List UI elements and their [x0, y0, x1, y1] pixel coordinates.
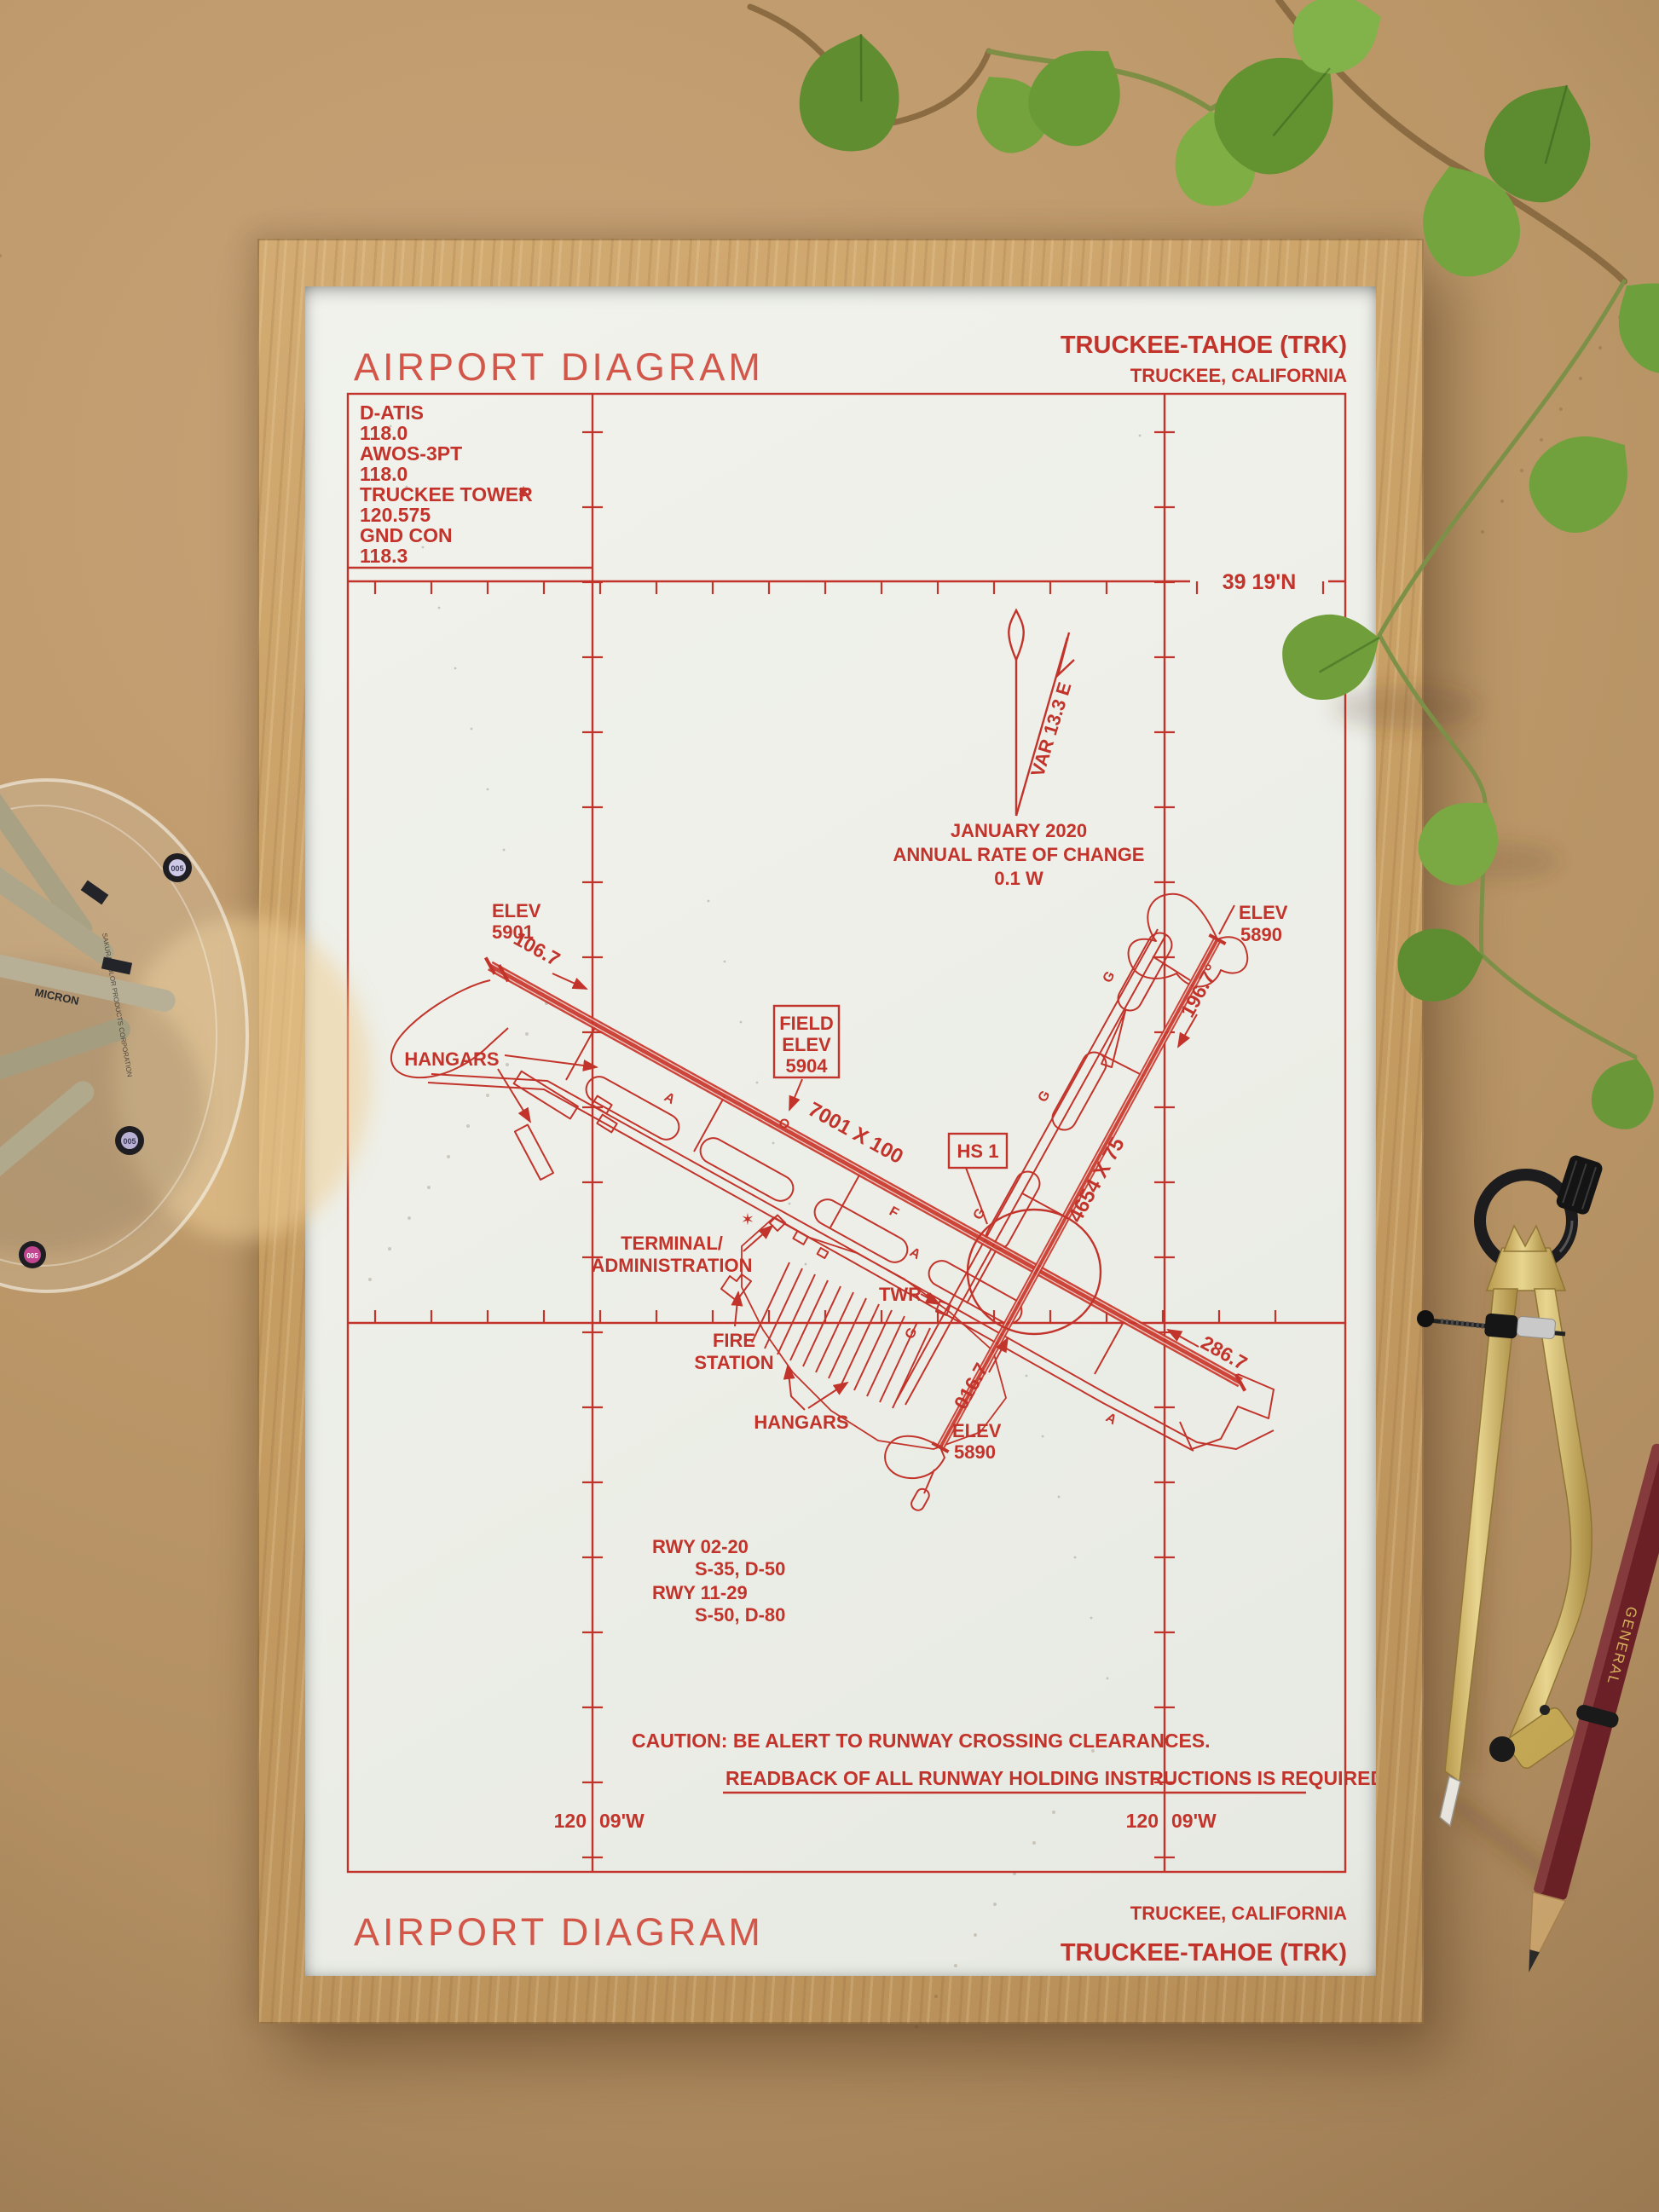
rwy-11-29-dim: 7001 X 100	[804, 1098, 906, 1169]
paper-speck	[837, 1384, 840, 1387]
paper-speck	[772, 1142, 775, 1145]
hangar-row-line	[867, 1316, 905, 1396]
compass-adjust-screw	[1417, 1310, 1565, 1339]
rwy-02-20-dim: 4654 X 75	[1064, 1134, 1130, 1227]
taxiway-a-label: A	[662, 1090, 678, 1108]
hangar-row-line	[841, 1304, 879, 1384]
pencil-body	[1533, 1442, 1659, 1901]
elev-11: 5901	[492, 921, 534, 943]
hangar-row-line	[790, 1280, 828, 1360]
leaf	[792, 26, 910, 159]
lon-label-left: 120	[554, 1810, 587, 1832]
compass-right-leg	[1509, 1289, 1592, 1751]
paper-speck	[1139, 435, 1142, 437]
screw-knurled-nut	[1484, 1313, 1518, 1338]
terminal-label: ADMINISTRATION	[591, 1255, 752, 1276]
taxiway-a-label: A	[907, 1245, 923, 1263]
rwy-data-line: RWY 02-20	[652, 1536, 749, 1557]
elev-11: ELEV	[492, 900, 541, 921]
pencil-highlight	[1533, 1442, 1659, 1895]
hangar-row-line	[777, 1274, 815, 1354]
hangars-s-label: HANGARS	[754, 1412, 848, 1433]
pen-size-text: 005	[123, 1137, 136, 1146]
leaf	[959, 60, 1060, 165]
paper-speck	[487, 788, 489, 791]
caution-line-1: CAUTION: BE ALERT TO RUNWAY CROSSING CLE…	[632, 1730, 1211, 1752]
airport-diagram-paper: AIRPORT DIAGRAM TRUCKEE-TAHOE (TRK) TRUC…	[305, 286, 1376, 1976]
rwy-data-line: RWY 11-29	[652, 1582, 748, 1603]
paper-speck	[805, 1263, 807, 1266]
compass-lead-tip	[1440, 1776, 1460, 1826]
pen-cap	[115, 1126, 144, 1155]
runways	[486, 935, 1246, 1452]
compass-head	[1487, 1248, 1565, 1291]
paper-speck	[1090, 1617, 1093, 1620]
tool-shadow	[1466, 1262, 1500, 1773]
runway-thresholds	[486, 935, 1246, 1452]
field-elev-line: 5904	[786, 1055, 829, 1077]
taxiway-g-label: G	[1101, 969, 1119, 985]
pen	[0, 933, 177, 1014]
caution-line-2: READBACK OF ALL RUNWAY HOLDING INSTRUCTI…	[725, 1767, 1376, 1789]
latitude-label: 39 19'N	[1223, 570, 1297, 594]
runway-11-29	[490, 966, 1240, 1383]
pen-cap-dot	[121, 1132, 138, 1149]
field-elev-line: FIELD	[779, 1013, 834, 1034]
clamp-screw-knob	[1489, 1736, 1515, 1762]
paper-speck	[1058, 1496, 1061, 1499]
elev-20: ELEV	[1239, 902, 1288, 923]
taxiway-g-label: G	[1036, 1089, 1054, 1105]
desk-speck	[915, 2025, 918, 2029]
hangar-row-line	[752, 1262, 789, 1343]
beacon-star-icon: ✶	[741, 1211, 754, 1229]
lon-label-right: 09'W	[599, 1810, 645, 1832]
clamp-bolt	[1540, 1705, 1550, 1715]
field-elev-line: ELEV	[782, 1034, 831, 1055]
paper-speck	[438, 607, 441, 609]
pen-cap-pink: 005	[19, 1241, 46, 1268]
compass-ring-highlight	[1480, 1175, 1572, 1267]
tower-star-icon: ✶	[517, 484, 529, 500]
hangars-nw-label: HANGARS	[404, 1048, 499, 1070]
pen	[0, 1015, 133, 1126]
rwy-02-heading: 016.7	[950, 1360, 993, 1413]
freq-line: TRUCKEE TOWER	[360, 483, 533, 505]
hotspot-label: HS 1	[957, 1141, 999, 1162]
desk-speck	[1598, 346, 1602, 349]
airport-diagram-chart: AIRPORT DIAGRAM TRUCKEE-TAHOE (TRK) TRUC…	[305, 286, 1376, 1976]
variation-value: 0.1 W	[994, 868, 1043, 889]
pen-cap-005: 005	[115, 1126, 144, 1155]
leaf	[1405, 150, 1534, 289]
pencil-brand-text: GENERAL	[1604, 1605, 1640, 1688]
twr-label: TWR	[879, 1284, 922, 1305]
pen-fine-print: SAKURA COLOR PRODUCTS CORPORATION	[101, 933, 134, 1078]
field-elev-text: FIELD ELEV 5904	[779, 1013, 834, 1077]
compass-left-leg	[1445, 1289, 1517, 1782]
elev-02: 5890	[954, 1441, 996, 1463]
pen-size-text: 005	[26, 1252, 38, 1260]
fire-label: FIRE	[713, 1330, 755, 1351]
glass-cup	[0, 780, 247, 1291]
pencil-wood-tip	[1517, 1892, 1566, 1959]
screw-silver-sleeve	[1517, 1316, 1556, 1339]
freq-line: 118.3	[360, 545, 408, 567]
tool-shadow	[1449, 1799, 1560, 1884]
paper-speck	[708, 900, 710, 903]
rwy-20-heading: 196.7°	[1176, 961, 1223, 1021]
desk-speck	[1481, 530, 1484, 534]
freq-line: AWOS-3PT	[360, 442, 462, 465]
paper-speck	[454, 667, 457, 670]
desk-speck	[1579, 377, 1582, 380]
compass-fork	[1504, 1226, 1546, 1251]
paper-speck	[789, 1203, 791, 1205]
leaf	[1469, 64, 1614, 218]
brass-compass	[1417, 1153, 1604, 1826]
taxiway-g-label: G	[903, 1325, 921, 1342]
field-elev-leader	[789, 1079, 802, 1110]
runway-labels: 7001 X 100 4654 X 75 106.7 286.7 196.7° …	[510, 927, 1251, 1413]
micron-pens: MICRON SAKURA COLOR PRODUCTS CORPORATION…	[0, 736, 192, 1268]
longitude-labels: 120 09'W 120 09'W	[554, 1810, 1217, 1832]
oak-picture-frame: AIRPORT DIAGRAM TRUCKEE-TAHOE (TRK) TRUC…	[257, 239, 1424, 2024]
caution-note: CAUTION: BE ALERT TO RUNWAY CROSSING CLE…	[632, 1730, 1376, 1789]
frequency-box: D-ATIS 118.0 AWOS-3PT 118.0 TRUCKEE TOWE…	[360, 401, 533, 567]
freq-line: D-ATIS	[360, 401, 424, 424]
facility-labels: HANGARS TERMINAL/ ADMINISTRATION FIRE ST…	[404, 1048, 922, 1433]
apron-and-buildings	[514, 1071, 1006, 1449]
rwy-data-line: S-35, D-50	[695, 1558, 785, 1580]
glass-shadow	[0, 963, 205, 1253]
desk-speck	[1500, 500, 1504, 503]
variation-rate: ANNUAL RATE OF CHANGE	[893, 844, 1145, 865]
magnetic-variation-label: VAR 13.3 E	[1026, 679, 1075, 779]
paper-speck	[740, 1021, 743, 1024]
variation-date: JANUARY 2020	[951, 820, 1087, 841]
general-pencil: GENERAL	[1508, 1441, 1659, 1978]
paper-speck	[503, 849, 506, 852]
freq-line: GND CON	[360, 524, 453, 546]
pencil-grip-band	[1575, 1703, 1620, 1729]
freq-line: 118.0	[360, 463, 408, 485]
pen	[0, 794, 118, 968]
hangar-row-line	[816, 1292, 853, 1372]
desk-speck	[1520, 469, 1523, 472]
desk-speck	[1638, 285, 1641, 288]
paper-speckles	[390, 425, 1142, 1741]
paper-speck	[1026, 1375, 1028, 1377]
pen-band	[101, 957, 132, 975]
airport-name: TRUCKEE-TAHOE (TRK)	[1061, 332, 1347, 359]
leaf	[1583, 1048, 1659, 1138]
pen-brand-text: MICRON	[33, 985, 80, 1008]
leaf	[1594, 258, 1659, 389]
compass-top-knob	[1555, 1153, 1604, 1216]
variation-note: JANUARY 2020 ANNUAL RATE OF CHANGE 0.1 W	[893, 820, 1145, 889]
freq-line: 118.0	[360, 422, 408, 444]
pen-cap-005: 005	[163, 853, 192, 882]
elev-02: ELEV	[952, 1420, 1002, 1441]
leaf-shadow	[1441, 842, 1560, 880]
graticule-ticks	[375, 432, 1323, 1857]
desk-speck	[1540, 438, 1543, 442]
chart-title: AIRPORT DIAGRAM	[354, 345, 764, 389]
pen-cap	[163, 853, 192, 882]
leaf	[1171, 107, 1258, 210]
leaf	[1283, 0, 1395, 84]
drafting-tools: GENERAL	[1417, 1153, 1659, 1978]
elev-20: 5890	[1240, 924, 1282, 945]
paper-speck	[1042, 1435, 1044, 1438]
paper-speck	[1107, 1678, 1109, 1680]
airport-city: TRUCKEE, CALIFORNIA	[1130, 365, 1347, 386]
footer-title: AIRPORT DIAGRAM	[354, 1910, 764, 1954]
terminal-label: TERMINAL/	[621, 1233, 723, 1254]
pen	[0, 736, 96, 943]
pen-band	[81, 881, 109, 905]
taxiway-a-label: A	[1103, 1411, 1119, 1429]
pen-cap-dot	[169, 859, 186, 876]
lon-label-right: 09'W	[1171, 1810, 1217, 1832]
pencil-lead	[1524, 1949, 1540, 1973]
compass-pencil-clamp	[1505, 1706, 1577, 1771]
paper-speck	[471, 728, 473, 731]
rwy-data-line: S-50, D-80	[695, 1604, 785, 1626]
desk-speck	[0, 254, 2, 257]
footer-airport: TRUCKEE-TAHOE (TRK)	[1061, 1939, 1347, 1967]
paper-speck	[422, 546, 425, 549]
footer-city: TRUCKEE, CALIFORNIA	[1130, 1903, 1347, 1924]
pen	[0, 1077, 99, 1258]
desk-speck	[1618, 315, 1621, 319]
paper-speck	[756, 1082, 759, 1084]
leaf	[1512, 410, 1655, 550]
pen-size-text: 005	[171, 864, 183, 873]
leaf	[1194, 26, 1366, 195]
compass-ring-handle	[1480, 1175, 1572, 1267]
fire-label: STATION	[694, 1352, 773, 1373]
photo-of-framed-airport-diagram: { "colors": { "ink": "#c2342b", "paper":…	[0, 0, 1659, 2212]
taxiway-f-label: F	[887, 1204, 901, 1222]
desk-speck	[1559, 407, 1563, 411]
hangar-row-line	[803, 1286, 841, 1366]
paper-speck	[724, 961, 726, 963]
paper-speck	[1074, 1556, 1077, 1559]
lon-label-left: 120	[1126, 1810, 1159, 1832]
runway-data-block: RWY 02-20 S-35, D-50 RWY 11-29 S-50, D-8…	[652, 1536, 785, 1626]
leaf	[1013, 26, 1144, 162]
glass-inner-rim	[0, 806, 217, 1266]
freq-line: 120.575	[360, 504, 431, 526]
hangar-row-line	[829, 1298, 866, 1378]
hangar-row-line	[765, 1268, 802, 1349]
